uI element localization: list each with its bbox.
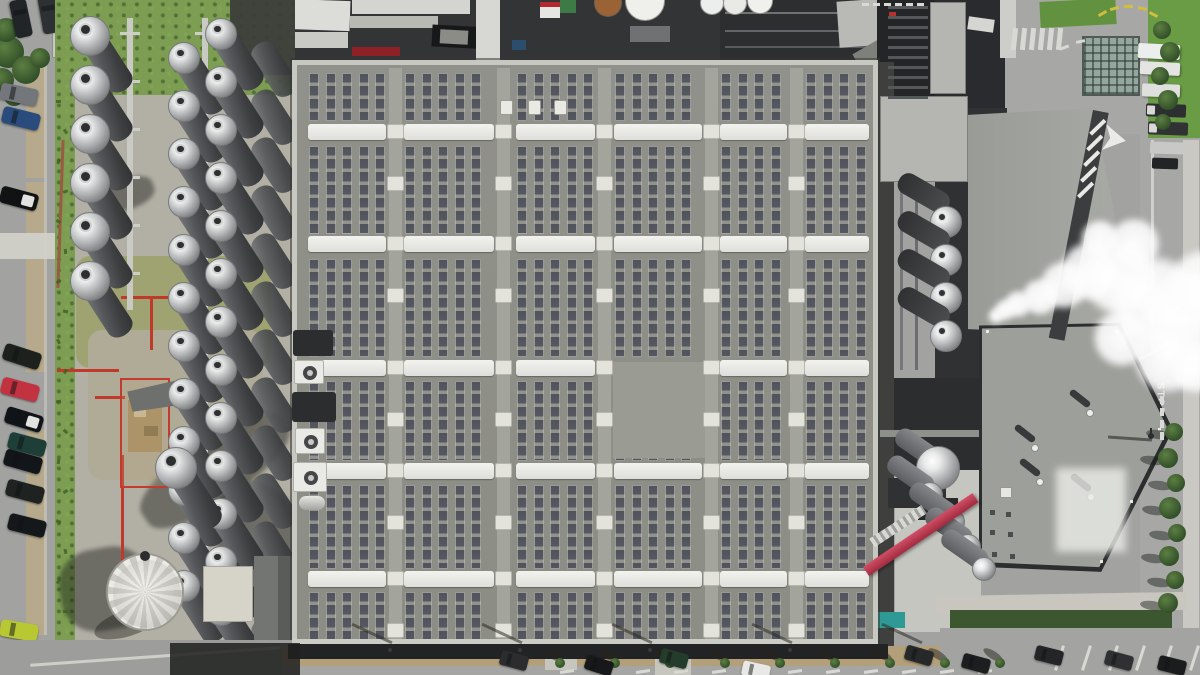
steam-layer <box>0 0 1200 675</box>
steam-plume-puff <box>1092 308 1152 368</box>
steam-plume-puff <box>1080 219 1120 259</box>
aerial-photograph: STOP <box>0 0 1200 675</box>
